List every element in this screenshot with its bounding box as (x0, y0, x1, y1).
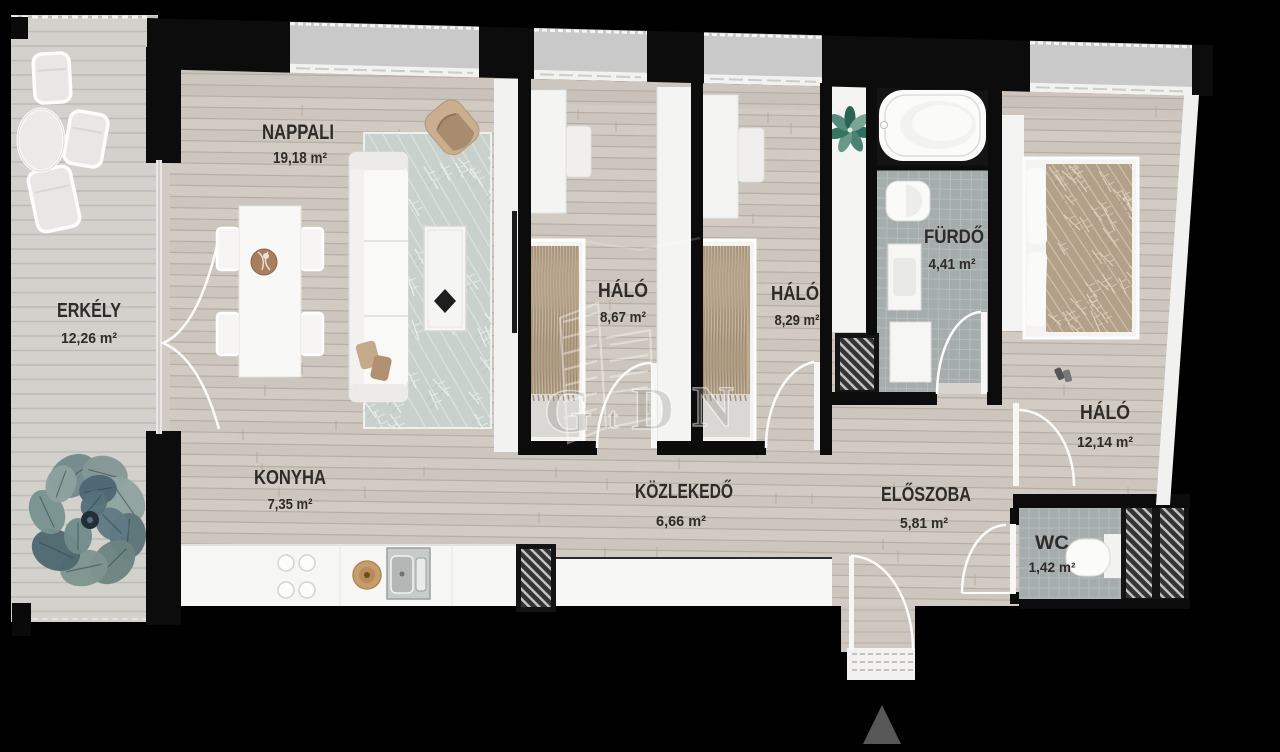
svg-text:7,35 m²: 7,35 m² (268, 496, 313, 513)
svg-text:NAPPALI: NAPPALI (262, 121, 334, 144)
svg-text:8,29 m²: 8,29 m² (775, 312, 820, 329)
svg-text:HÁLÓ: HÁLÓ (1080, 400, 1130, 424)
svg-text:ERKÉLY: ERKÉLY (57, 299, 122, 322)
svg-text:4,41 m²: 4,41 m² (929, 256, 976, 273)
svg-text:N: N (692, 374, 734, 439)
svg-text:5,81 m²: 5,81 m² (900, 515, 948, 532)
svg-text:8,67 m²: 8,67 m² (600, 309, 646, 326)
svg-text:HÁLÓ: HÁLÓ (598, 278, 648, 302)
svg-text:12,26 m²: 12,26 m² (61, 330, 117, 347)
svg-text:KONYHA: KONYHA (254, 467, 326, 489)
svg-text:KÖZLEKEDŐ: KÖZLEKEDŐ (635, 480, 733, 503)
svg-text:1,42 m²: 1,42 m² (1029, 559, 1076, 575)
svg-text:ELŐSZOBA: ELŐSZOBA (881, 483, 971, 506)
svg-text:WC: WC (1035, 533, 1069, 554)
svg-text:FÜRDŐ: FÜRDŐ (924, 226, 984, 248)
svg-text:t: t (608, 402, 618, 435)
svg-text:12,14 m²: 12,14 m² (1077, 434, 1133, 451)
svg-text:6,66 m²: 6,66 m² (656, 513, 706, 530)
svg-text:HÁLÓ: HÁLÓ (771, 281, 819, 305)
svg-text:19,18 m²: 19,18 m² (273, 150, 327, 167)
